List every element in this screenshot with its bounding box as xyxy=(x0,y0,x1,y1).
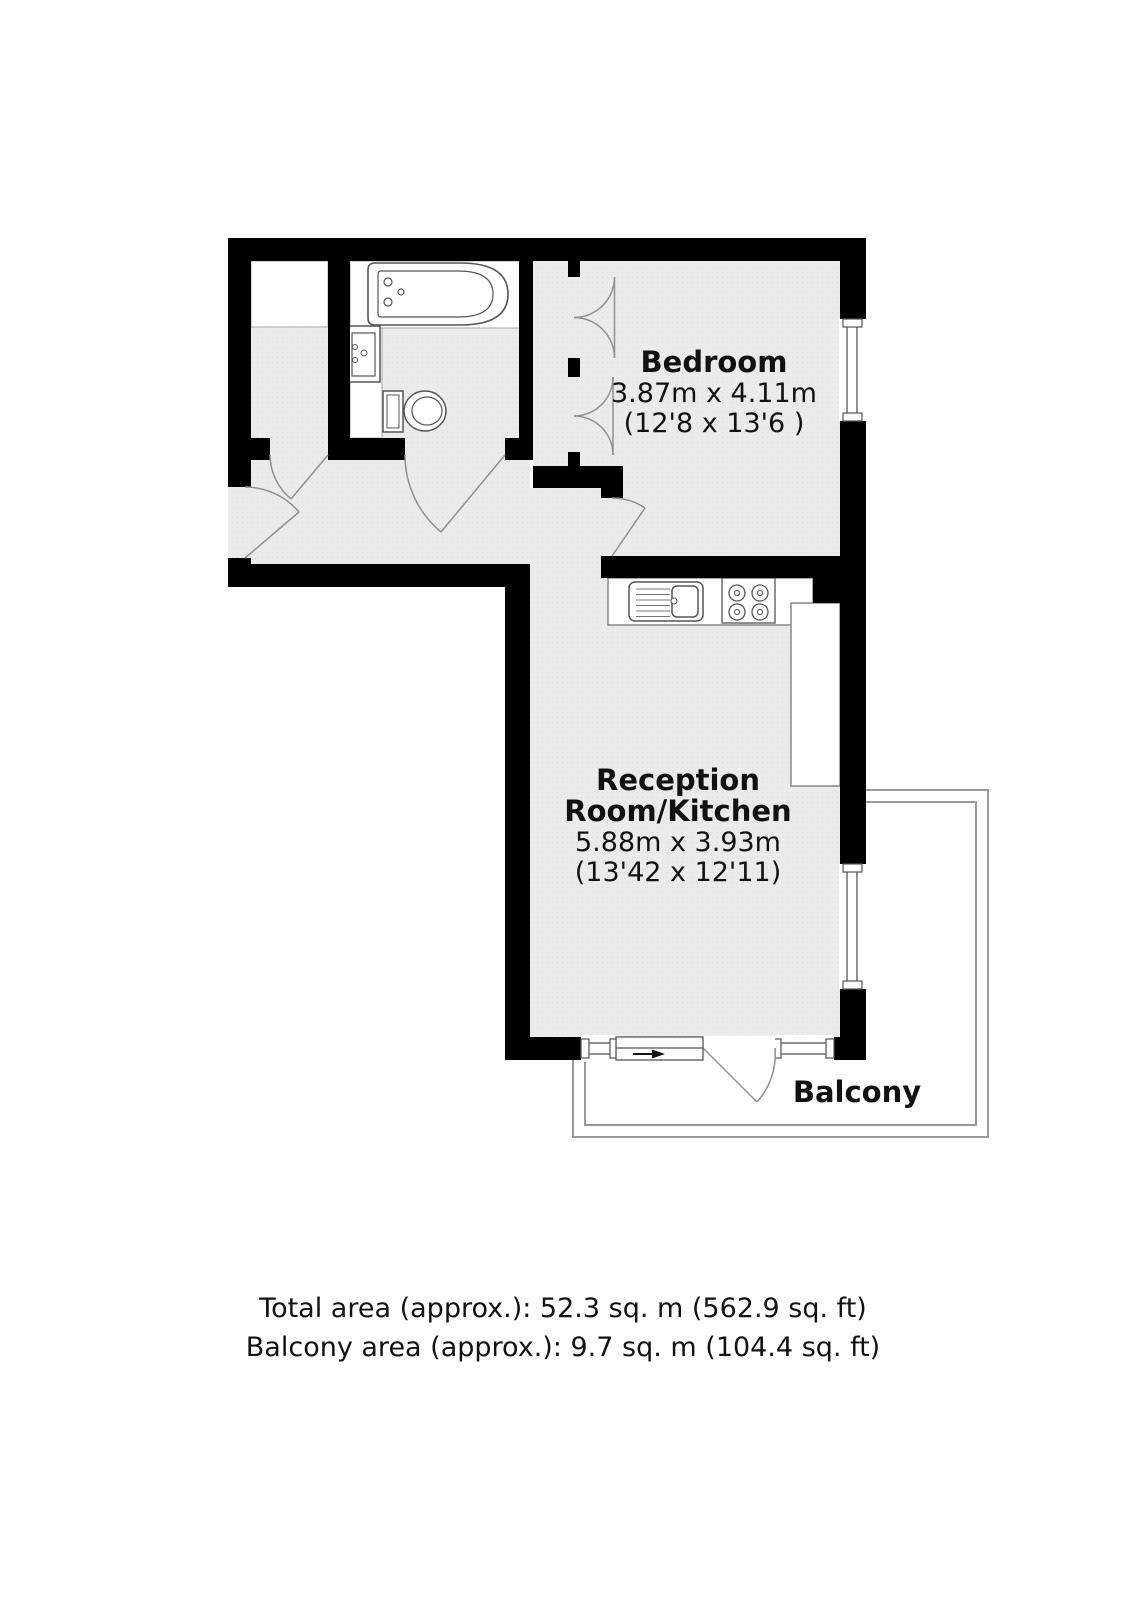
wall-kitchen xyxy=(601,556,862,578)
reception-window-right xyxy=(839,864,867,989)
floor-plan-drawing: Bedroom 3.87m x 4.11m (12'8 x 13'6 ) Rec… xyxy=(0,0,1131,1600)
wall-kitchen-notch xyxy=(813,578,840,603)
storage-doorway-floor xyxy=(270,438,328,460)
total-area-text: Total area (approx.): 52.3 sq. m (562.9 … xyxy=(258,1293,867,1324)
wall-bedroom-door-top-jamb xyxy=(601,488,623,498)
entry-doorway-floor xyxy=(228,487,251,558)
wall-bedroom-bottom-left xyxy=(533,466,623,488)
basin-tap xyxy=(353,345,358,350)
wall-wardrobe-stub-bottom xyxy=(568,452,580,466)
wall-wardrobe-stub-top xyxy=(568,261,580,277)
balcony-sliding-door xyxy=(616,1037,703,1060)
balcony-area-text: Balcony area (approx.): 9.7 sq. m (104.4… xyxy=(246,1332,880,1363)
kitchen-sink xyxy=(629,582,703,621)
basin-tap xyxy=(353,358,358,363)
wall-hallway-bottom xyxy=(228,564,530,587)
wall-reception-left xyxy=(505,564,530,1060)
reception-size-imperial: (13'42 x 12'11) xyxy=(575,857,781,888)
bedroom-size-imperial: (12'8 x 13'6 ) xyxy=(624,408,805,439)
wall-storage-door-jamb xyxy=(251,438,270,460)
hob-burner-center xyxy=(734,590,739,595)
bathroom-doorway-floor xyxy=(405,438,505,460)
basin-drain xyxy=(361,350,367,356)
passage-floor xyxy=(530,488,601,564)
reception-label-line1: Reception xyxy=(596,763,760,797)
wall-bathroom-bottom xyxy=(350,438,405,460)
kitchen-counter-return xyxy=(791,603,840,786)
balcony-doorway xyxy=(703,1036,775,1061)
hob-burner-center xyxy=(757,609,762,614)
reception-size-metric: 5.88m x 3.93m xyxy=(575,827,781,858)
bedroom-doorway-floor xyxy=(601,498,623,556)
bathtub-tap xyxy=(384,298,392,306)
hob-burner-center xyxy=(734,609,739,614)
hob xyxy=(722,578,775,623)
bathtub-drain xyxy=(398,289,404,295)
wall-wardrobe-stub-mid xyxy=(568,358,580,377)
bathtub xyxy=(368,263,508,325)
bedroom-window xyxy=(839,319,867,421)
toilet-bowl-inner xyxy=(412,397,442,425)
storage-floor xyxy=(251,327,328,438)
reception-label-line2: Room/Kitchen xyxy=(564,794,791,828)
bathtub-tap xyxy=(384,278,392,286)
wall-storage-bathroom-divider xyxy=(328,261,350,460)
sink-tap xyxy=(671,598,677,604)
toilet xyxy=(383,391,446,432)
bedroom-size-metric: 3.87m x 4.11m xyxy=(611,378,817,409)
reception-window-bottom-left xyxy=(581,1035,618,1062)
storage-shelf-area xyxy=(251,261,328,327)
balcony-label: Balcony xyxy=(793,1075,921,1109)
wall-left-upper xyxy=(228,261,251,487)
hob-burner-center xyxy=(757,590,762,595)
reception-window-bottom-right xyxy=(773,1035,834,1062)
wall-top xyxy=(228,238,866,261)
wall-bathroom-right xyxy=(519,261,533,460)
wash-basin xyxy=(347,326,380,382)
toilet-cistern-inner xyxy=(387,395,399,428)
bedroom-label: Bedroom xyxy=(641,345,788,379)
bathtub-inner xyxy=(378,271,493,317)
floor-plan-page: Bedroom 3.87m x 4.11m (12'8 x 13'6 ) Rec… xyxy=(0,0,1131,1600)
